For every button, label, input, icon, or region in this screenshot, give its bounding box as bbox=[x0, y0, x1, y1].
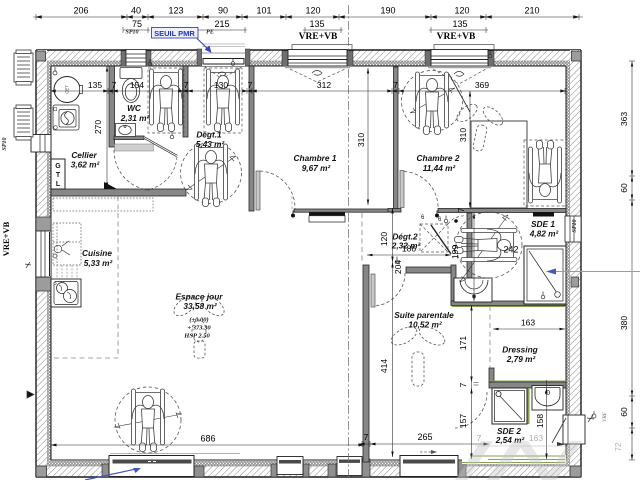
svg-text:206: 206 bbox=[73, 6, 88, 16]
svg-text:VRE: VRE bbox=[602, 411, 608, 422]
svg-text:7: 7 bbox=[248, 80, 253, 90]
svg-text:Cuisine: Cuisine bbox=[82, 248, 112, 258]
svg-text:380: 380 bbox=[619, 316, 629, 330]
svg-text:310: 310 bbox=[356, 133, 366, 147]
svg-text:VRE+VB: VRE+VB bbox=[437, 32, 476, 42]
svg-text:7: 7 bbox=[112, 80, 117, 90]
svg-text:120: 120 bbox=[305, 6, 320, 16]
svg-text:CET: CET bbox=[65, 85, 70, 94]
svg-text:135: 135 bbox=[452, 19, 467, 29]
svg-text:7: 7 bbox=[458, 382, 468, 387]
svg-text:135: 135 bbox=[309, 19, 324, 29]
svg-text:5,33 m²: 5,33 m² bbox=[84, 258, 113, 268]
svg-text:L: L bbox=[56, 181, 61, 188]
svg-text:SP10: SP10 bbox=[572, 219, 578, 232]
svg-text:190: 190 bbox=[380, 6, 395, 16]
svg-text:10,52 m²: 10,52 m² bbox=[408, 320, 441, 330]
svg-text:7: 7 bbox=[364, 432, 369, 442]
svg-text:SP10: SP10 bbox=[125, 30, 138, 36]
svg-text:HSP 2.50: HSP 2.50 bbox=[183, 333, 210, 340]
svg-text:2,79 m²: 2,79 m² bbox=[506, 354, 536, 364]
svg-text:270: 270 bbox=[93, 120, 103, 134]
svg-text:Dégt.1: Dégt.1 bbox=[196, 130, 222, 140]
svg-text:120: 120 bbox=[379, 232, 389, 246]
svg-text:75: 75 bbox=[132, 19, 142, 29]
svg-text:60: 60 bbox=[619, 407, 629, 417]
svg-text:130: 130 bbox=[214, 80, 228, 90]
svg-text:369: 369 bbox=[475, 80, 489, 90]
svg-text:4,82 m²: 4,82 m² bbox=[529, 229, 559, 239]
svg-text:Dressing: Dressing bbox=[502, 345, 538, 355]
svg-text:PE: PE bbox=[206, 30, 214, 36]
svg-text:2,31 m²: 2,31 m² bbox=[120, 113, 150, 123]
svg-text:90: 90 bbox=[218, 6, 228, 16]
svg-text:310: 310 bbox=[458, 128, 468, 142]
svg-text:101: 101 bbox=[256, 6, 271, 16]
svg-text:7: 7 bbox=[453, 243, 458, 253]
svg-text:158: 158 bbox=[535, 414, 545, 428]
svg-text:72: 72 bbox=[614, 442, 623, 451]
svg-text:SDE 1: SDE 1 bbox=[531, 219, 555, 229]
svg-text:33,58 m²: 33,58 m² bbox=[183, 301, 216, 311]
svg-text:Cellier: Cellier bbox=[71, 150, 97, 160]
svg-text:VRE+VB: VRE+VB bbox=[1, 221, 11, 256]
svg-text:3,62 m²: 3,62 m² bbox=[71, 160, 100, 170]
svg-text:363: 363 bbox=[619, 112, 629, 126]
svg-text:T: T bbox=[56, 172, 61, 179]
svg-text:123: 123 bbox=[168, 6, 183, 16]
svg-text:2,32 m²: 2,32 m² bbox=[391, 241, 421, 251]
svg-text:215: 215 bbox=[214, 19, 229, 29]
svg-text:7: 7 bbox=[393, 80, 398, 90]
svg-text:242: 242 bbox=[503, 245, 518, 255]
svg-text:Espace jour: Espace jour bbox=[175, 292, 223, 302]
svg-text:5,43 m²: 5,43 m² bbox=[196, 139, 225, 149]
svg-text:+ 373.30: + 373.30 bbox=[187, 325, 211, 332]
svg-text:Suite parentale: Suite parentale bbox=[394, 310, 454, 320]
svg-text:686: 686 bbox=[200, 434, 215, 444]
svg-text:157: 157 bbox=[458, 414, 468, 428]
svg-text:265: 265 bbox=[417, 432, 432, 442]
svg-text:SP10: SP10 bbox=[2, 137, 8, 150]
svg-text:7: 7 bbox=[456, 207, 466, 212]
svg-text:40: 40 bbox=[131, 6, 141, 16]
svg-text:154: 154 bbox=[130, 80, 144, 90]
svg-text:204: 204 bbox=[393, 260, 403, 274]
svg-text:VRE+VB: VRE+VB bbox=[299, 32, 338, 42]
svg-text:SEUIL PMR: SEUIL PMR bbox=[154, 29, 195, 38]
svg-text:163: 163 bbox=[529, 433, 543, 443]
svg-text:312: 312 bbox=[317, 80, 331, 90]
svg-text:11,44 m²: 11,44 m² bbox=[423, 163, 456, 173]
svg-text:7: 7 bbox=[184, 80, 189, 90]
svg-text:163: 163 bbox=[521, 318, 535, 328]
svg-text:G: G bbox=[55, 163, 61, 170]
svg-text:Chambre 1: Chambre 1 bbox=[294, 153, 337, 163]
svg-text:9,67 m²: 9,67 m² bbox=[302, 163, 331, 173]
svg-text:414: 414 bbox=[379, 359, 389, 373]
svg-text:Chambre 2: Chambre 2 bbox=[417, 153, 460, 163]
svg-text:120: 120 bbox=[454, 6, 469, 16]
svg-text:60: 60 bbox=[619, 183, 629, 193]
svg-text:171: 171 bbox=[458, 336, 468, 350]
svg-text:WC: WC bbox=[127, 103, 142, 113]
svg-text:(±0.00): (±0.00) bbox=[189, 317, 208, 324]
svg-text:135: 135 bbox=[88, 80, 102, 90]
svg-text:210: 210 bbox=[524, 6, 539, 16]
